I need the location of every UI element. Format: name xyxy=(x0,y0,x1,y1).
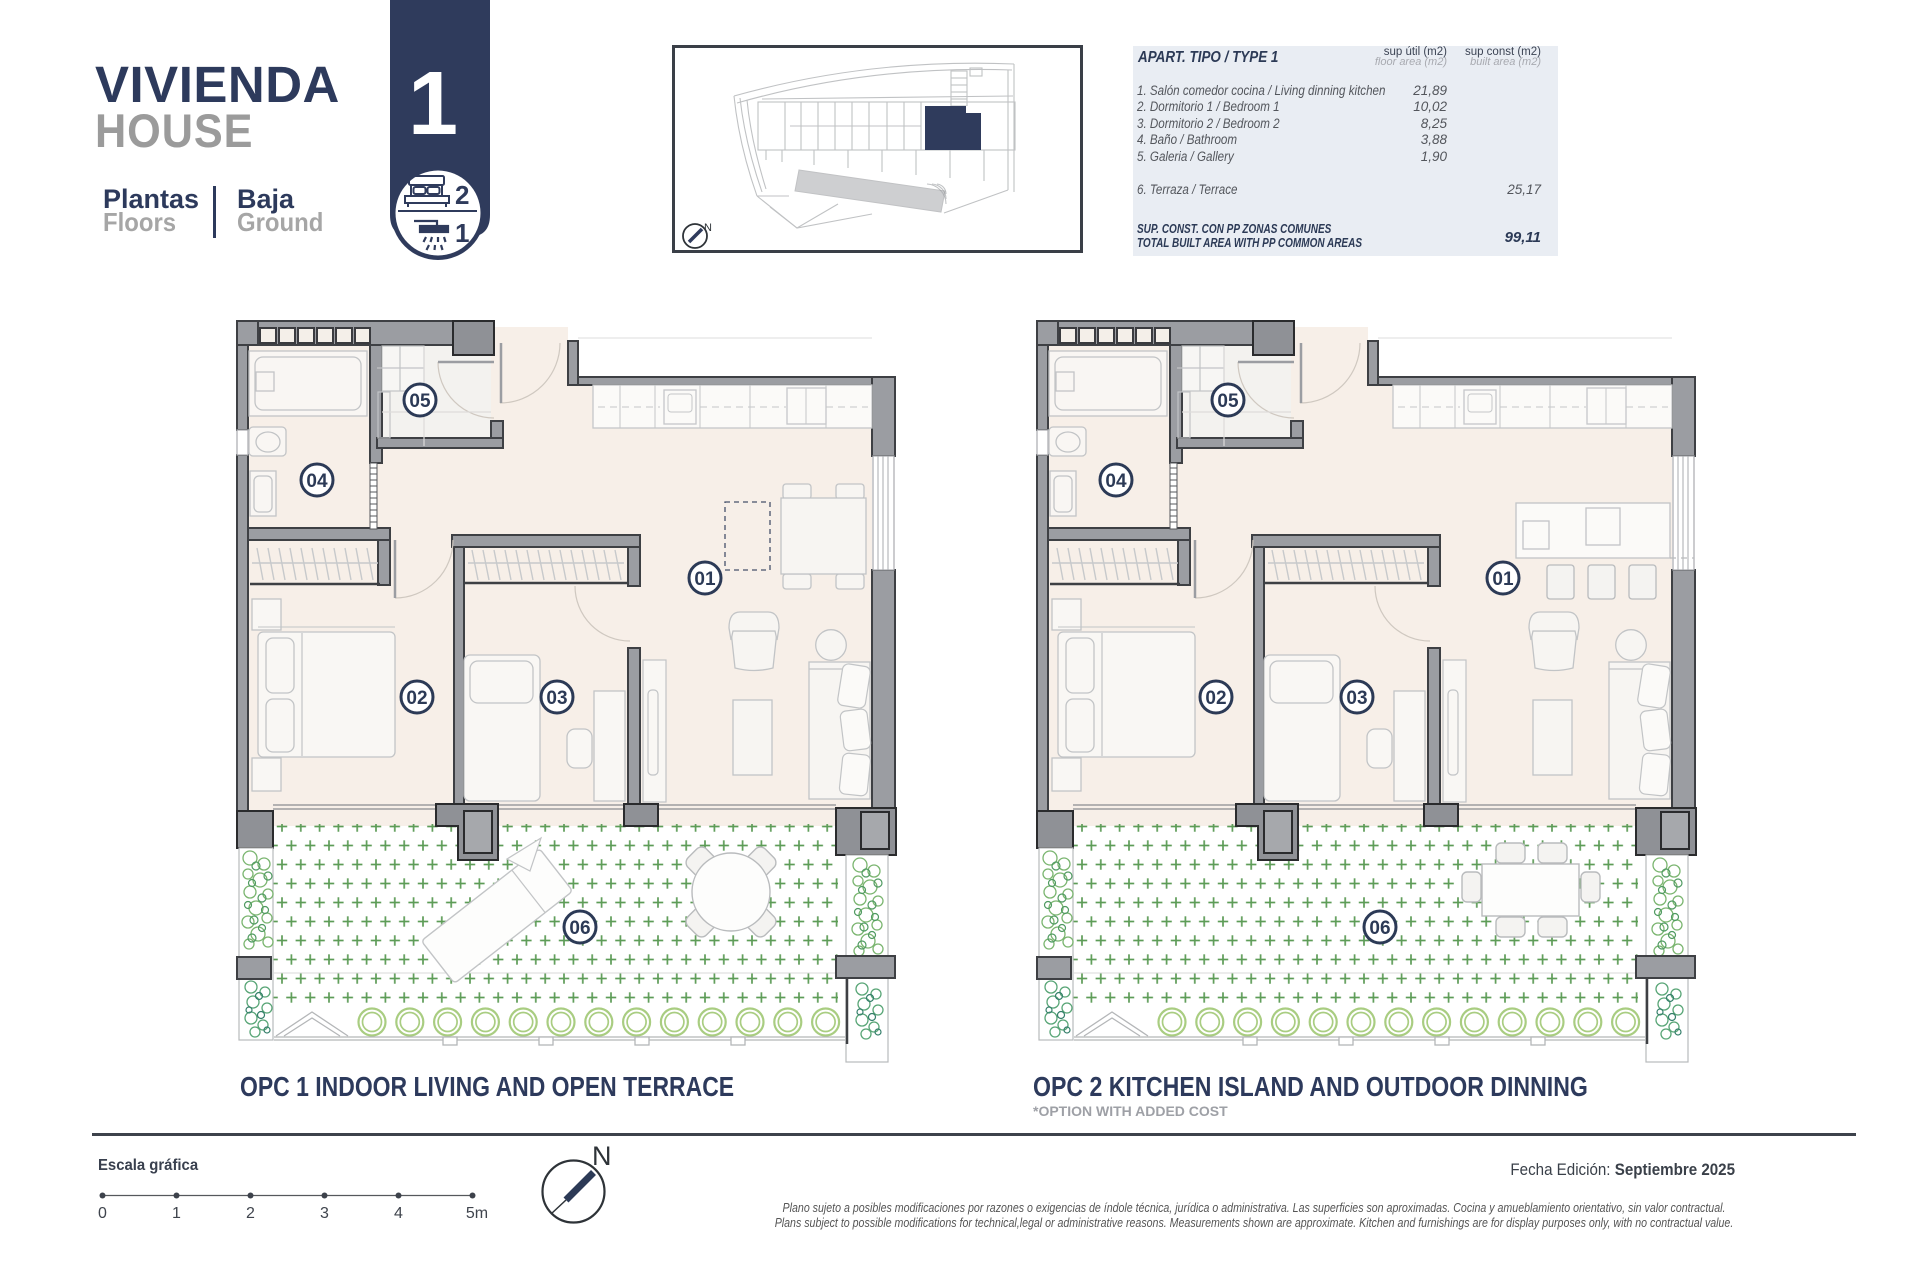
svg-text:05: 05 xyxy=(1217,391,1239,412)
svg-text:1: 1 xyxy=(455,218,469,248)
svg-text:N: N xyxy=(704,222,712,234)
svg-text:06: 06 xyxy=(569,918,590,939)
svg-text:02: 02 xyxy=(1205,688,1226,709)
svg-text:1: 1 xyxy=(408,54,458,154)
svg-text:04: 04 xyxy=(306,471,328,492)
svg-text:05: 05 xyxy=(409,391,431,412)
svg-text:2: 2 xyxy=(455,180,469,210)
svg-text:02: 02 xyxy=(406,688,427,709)
svg-text:01: 01 xyxy=(1492,569,1514,590)
svg-text:03: 03 xyxy=(546,688,567,709)
svg-text:06: 06 xyxy=(1369,918,1390,939)
svg-text:04: 04 xyxy=(1105,471,1127,492)
svg-text:03: 03 xyxy=(1346,688,1367,709)
svg-text:01: 01 xyxy=(694,569,716,590)
